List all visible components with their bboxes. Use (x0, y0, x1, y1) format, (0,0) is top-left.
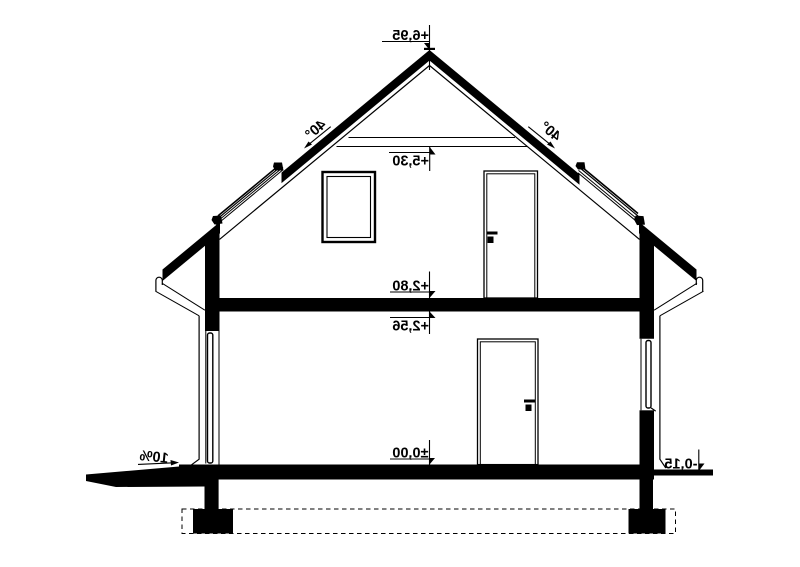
svg-text:+5,30: +5,30 (392, 154, 429, 170)
svg-text:±0,00: ±0,00 (392, 446, 428, 462)
svg-text:+6,95: +6,95 (392, 28, 429, 44)
svg-text:-0,15: -0,15 (664, 457, 697, 473)
svg-text:+2,56: +2,56 (392, 319, 429, 335)
svg-text:+2,80: +2,80 (392, 279, 429, 295)
